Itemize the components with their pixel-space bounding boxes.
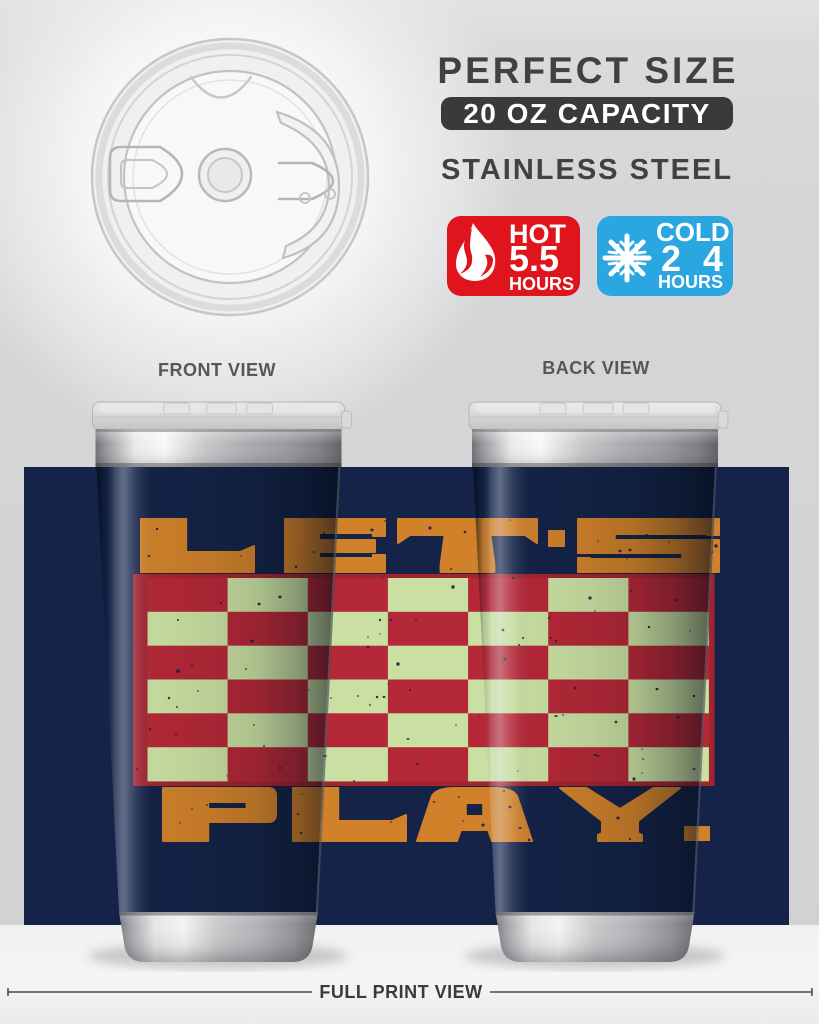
svg-text:FRONT VIEW: FRONT VIEW	[158, 360, 276, 380]
svg-text:HOURS: HOURS	[509, 274, 574, 294]
svg-text:HOURS: HOURS	[658, 272, 723, 292]
svg-text:PERFECT SIZE: PERFECT SIZE	[437, 50, 738, 91]
svg-text:5.5: 5.5	[509, 238, 559, 279]
svg-text:STAINLESS STEEL: STAINLESS STEEL	[441, 154, 733, 186]
svg-text:BACK VIEW: BACK VIEW	[542, 358, 650, 378]
svg-text:FULL PRINT VIEW: FULL PRINT VIEW	[319, 982, 482, 1002]
svg-text:20 OZ CAPACITY: 20 OZ CAPACITY	[463, 98, 711, 129]
